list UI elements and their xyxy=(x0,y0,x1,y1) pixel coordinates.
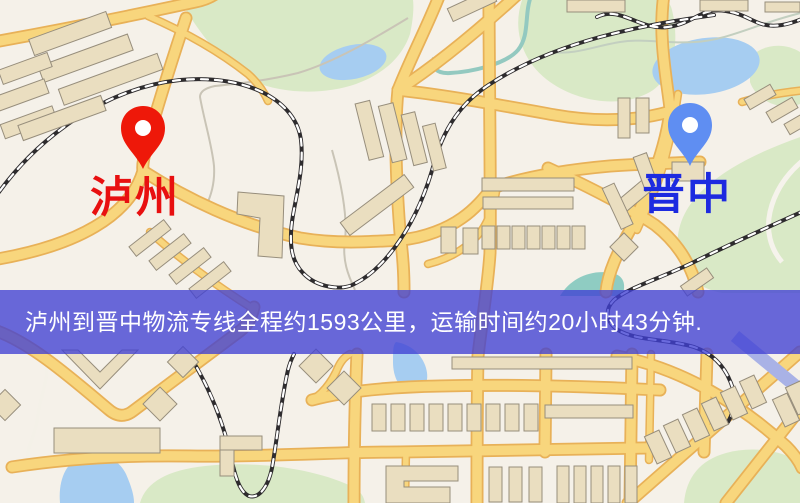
destination-label: 晋中 xyxy=(632,173,742,218)
origin-pin-icon xyxy=(117,103,169,169)
origin-marker xyxy=(117,103,169,169)
destination-marker xyxy=(664,100,716,166)
destination-pin-icon xyxy=(664,100,716,166)
route-info-text: 泸州到晋中物流专线全程约1593公里，运输时间约20小时43分钟. xyxy=(0,290,800,354)
logistics-route-map-image: 泸州 晋中 泸州到晋中物流专线全程约1593公里，运输时间约20小时43分钟. xyxy=(0,0,800,503)
origin-pin-hole xyxy=(135,120,151,136)
destination-pin-hole xyxy=(682,117,698,133)
route-info-banner: 泸州到晋中物流专线全程约1593公里，运输时间约20小时43分钟. xyxy=(0,290,800,354)
map-canvas xyxy=(0,0,800,503)
origin-label: 泸州 xyxy=(80,176,190,221)
